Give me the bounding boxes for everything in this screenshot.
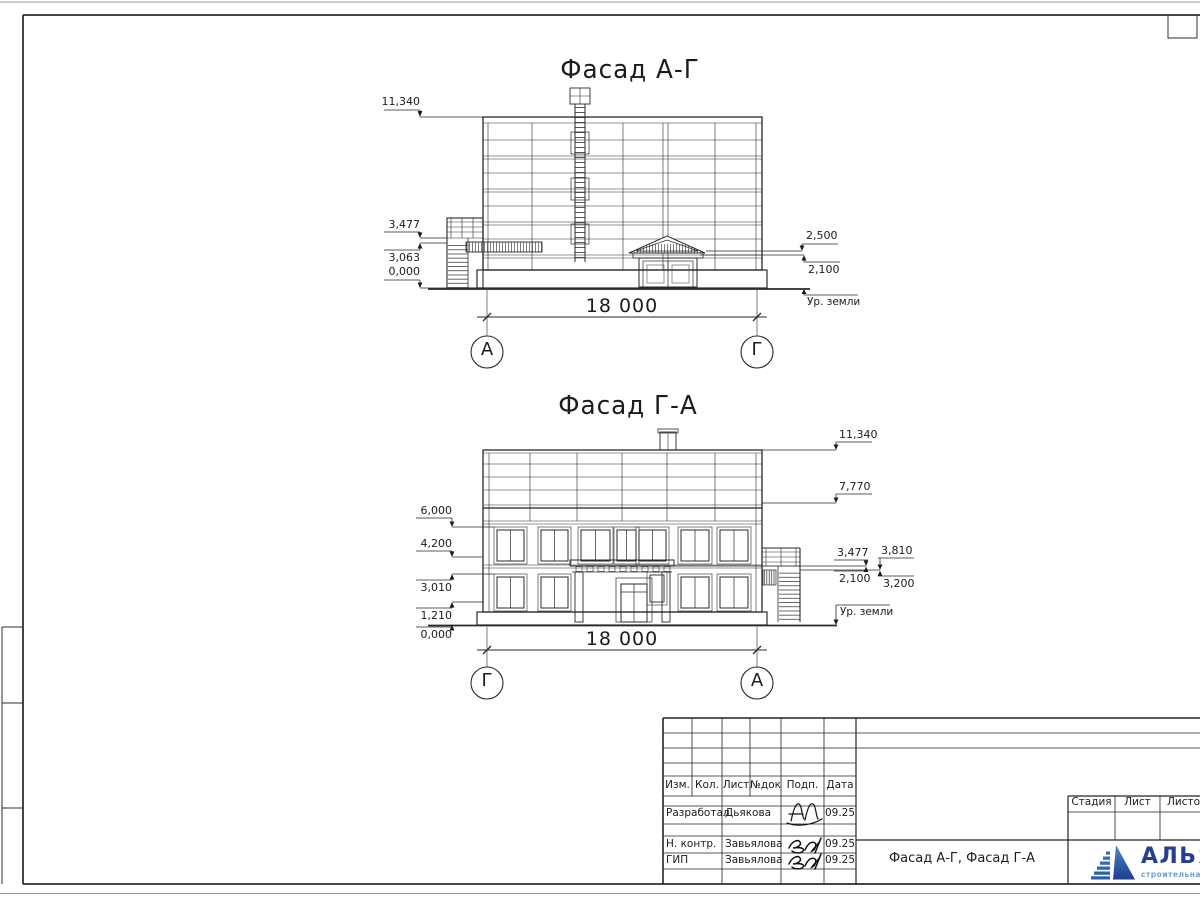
drawing-linework <box>0 0 1200 900</box>
elevation-mark: 11,340 <box>378 96 420 108</box>
elevation-mark: 11,340 <box>839 429 881 441</box>
facade2-linework <box>416 429 914 699</box>
elevation-mark: 0,000 <box>378 266 420 278</box>
elevation-mark: 2,100 <box>839 573 881 585</box>
titleblock-col-kol: Кол. <box>692 780 722 791</box>
company-logo-name: АЛЬЯНС <box>1141 845 1200 868</box>
elevation-mark: 0,000 <box>410 629 452 641</box>
elevation-mark: 3,010 <box>410 582 452 594</box>
titleblock-date: 09.25 <box>824 839 856 850</box>
facade1-arrowheads <box>418 111 807 294</box>
facade2-total-dimension: 18 000 <box>572 630 672 650</box>
elevation-mark: 2,100 <box>808 264 850 276</box>
drawing-sheet: Фасад А-Г 18 000 А Г 11,340 3,477 3,063 … <box>0 0 1200 900</box>
sheet-frame <box>0 2 1200 894</box>
titleblock-name: Завьялова <box>725 855 783 866</box>
elevation-mark: 3,477 <box>837 547 879 559</box>
facade1-total-dimension: 18 000 <box>572 297 672 317</box>
facade1-axis-left: А <box>471 341 503 360</box>
elevation-mark: 4,200 <box>410 538 452 550</box>
ground-level-label: Ур. земли <box>840 607 893 618</box>
titleblock-col-izm: Изм. <box>663 780 692 791</box>
company-logo-subtitle: строительная компания <box>1141 871 1200 879</box>
sheets-header: Листов <box>1167 797 1200 808</box>
facade2-axis-right: А <box>741 672 773 691</box>
signature-nkontr <box>789 838 821 853</box>
elevation-mark: 2,500 <box>806 230 848 242</box>
titleblock-col-data: Дата <box>824 780 856 791</box>
elevation-mark: 3,477 <box>378 219 420 231</box>
titleblock-col-ndok: №док <box>750 780 781 791</box>
signature-gip <box>789 854 821 869</box>
alliance-logo-icon <box>1091 845 1135 880</box>
facade1-axis-right: Г <box>741 341 773 360</box>
titleblock-date: 09.25 <box>824 808 856 819</box>
signature-razrabotal <box>787 804 822 825</box>
titleblock-name: Дьякова <box>725 808 771 819</box>
titleblock-col-list: Лист <box>722 780 750 791</box>
elevation-mark: 3,810 <box>881 545 923 557</box>
facade1-title: Фасад А-Г <box>507 57 754 84</box>
titleblock-role: Разработал <box>666 808 730 819</box>
titleblock-col-podp: Подп. <box>781 780 824 791</box>
elevation-mark: 3,200 <box>883 578 925 590</box>
ground-level-label: Ур. земли <box>807 297 860 308</box>
elevation-mark: 6,000 <box>410 505 452 517</box>
titleblock-role: ГИП <box>666 855 688 866</box>
drawing-name: Фасад А-Г, Фасад Г-А <box>860 852 1064 866</box>
titleblock-date: 09.25 <box>824 855 856 866</box>
facade1-linework <box>384 88 858 368</box>
stage-header: Стадия <box>1068 797 1115 808</box>
facade2-title: Фасад Г-А <box>505 393 752 420</box>
elevation-mark: 3,063 <box>378 252 420 264</box>
elevation-mark: 7,770 <box>839 481 881 493</box>
elevation-mark: 1,210 <box>410 610 452 622</box>
titleblock-name: Завьялова <box>725 839 783 850</box>
facade2-axis-left: Г <box>471 672 503 691</box>
sheet-header: Лист <box>1115 797 1160 808</box>
titleblock-role: Н. контр. <box>666 839 716 850</box>
